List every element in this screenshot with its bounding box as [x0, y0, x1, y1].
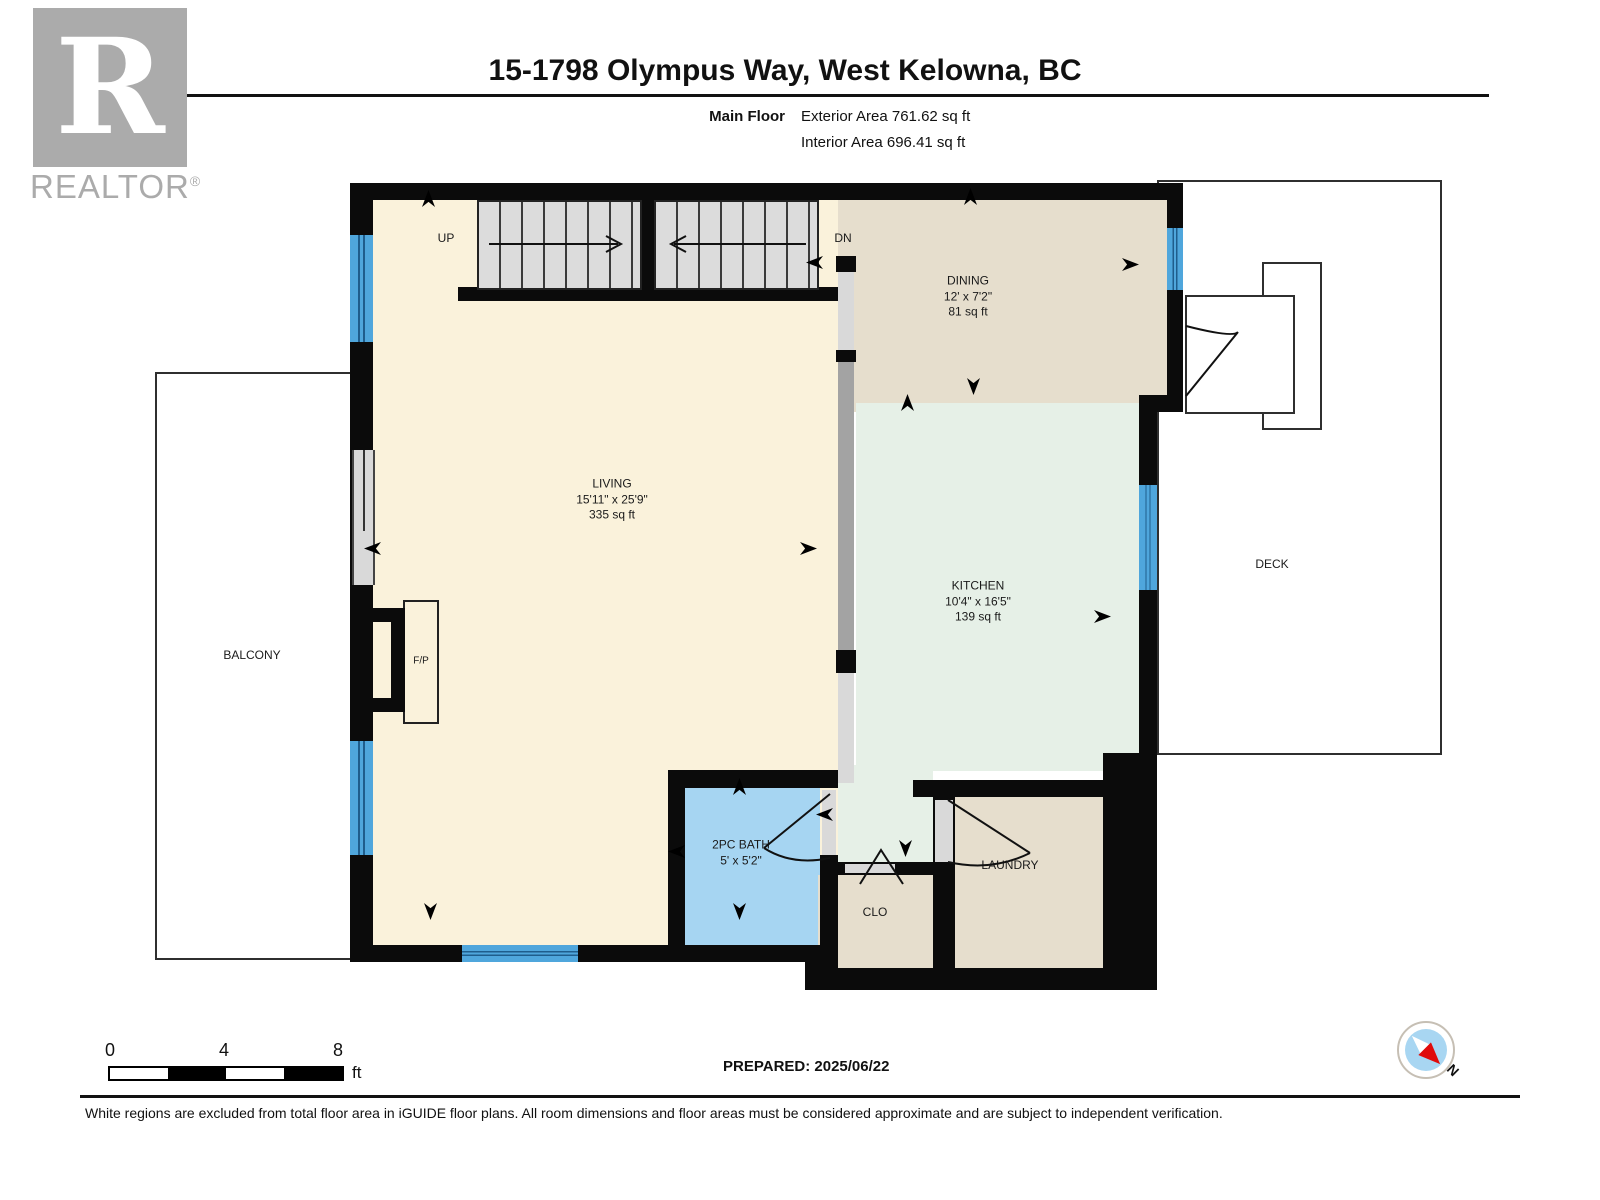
- stairs-up-label: UP: [438, 231, 455, 247]
- room-dims: 10'4" x 16'5": [945, 594, 1011, 610]
- room-label-kitchen: KITCHEN 10'4" x 16'5" 139 sq ft: [945, 579, 1011, 626]
- door-opening: [845, 864, 895, 873]
- room-name: 2PC BATH: [712, 837, 770, 853]
- exterior-area-text: Exterior Area 761.62 sq ft: [801, 108, 970, 125]
- room-label-closet: CLO: [863, 905, 888, 921]
- passage-opening: [838, 272, 854, 350]
- room-name: DINING: [944, 274, 992, 290]
- realtor-logo-icon: R: [33, 8, 187, 167]
- room-laundry-floor: [955, 797, 1110, 968]
- scale-tick-0: 0: [105, 1040, 115, 1061]
- room-name: CLO: [863, 905, 888, 921]
- door-opening: [822, 790, 836, 855]
- room-label-bath: 2PC BATH 5' x 5'2": [712, 837, 770, 868]
- scale-unit: ft: [352, 1063, 361, 1083]
- stairs-down-label: DN: [834, 231, 851, 247]
- room-area: 139 sq ft: [945, 610, 1011, 626]
- disclaimer-text: White regions are excluded from total fl…: [85, 1105, 1535, 1121]
- realtor-logo-letter: R: [55, 22, 165, 154]
- room-name: KITCHEN: [945, 579, 1011, 595]
- door-opening: [935, 800, 953, 862]
- room-name: DECK: [1255, 557, 1288, 573]
- wall-segment: [836, 256, 856, 272]
- room-label-laundry: LAUNDRY: [981, 858, 1038, 874]
- room-dims: 12' x 7'2": [944, 289, 992, 305]
- sliding-door: [352, 450, 375, 585]
- room-dining-floor: [838, 200, 1167, 412]
- title-divider: [77, 94, 1489, 97]
- room-label-dining: DINING 12' x 7'2" 81 sq ft: [944, 274, 992, 321]
- wall-segment: [1167, 183, 1183, 412]
- window: [350, 741, 373, 855]
- deck-landing-inner: [1185, 295, 1295, 414]
- room-name: LAUNDRY: [981, 858, 1038, 874]
- fireplace-label: F/P: [413, 655, 429, 668]
- stairs-up: [477, 200, 642, 290]
- room-dims: 5' x 5'2": [712, 853, 770, 869]
- wall-segment: [836, 350, 856, 362]
- scale-tick-8: 8: [333, 1040, 343, 1061]
- wall-segment: [350, 945, 820, 962]
- floorplan-page: R REALTOR® 15-1798 Olympus Way, West Kel…: [0, 0, 1600, 1200]
- wall-segment: [805, 968, 1140, 990]
- fireplace-frame: [373, 698, 405, 712]
- page-title: 15-1798 Olympus Way, West Kelowna, BC: [0, 54, 1570, 88]
- room-area: 81 sq ft: [944, 305, 992, 321]
- room-dims: 15'11" x 25'9": [576, 492, 648, 508]
- scale-tick-4: 4: [219, 1040, 229, 1061]
- window: [350, 235, 373, 342]
- wall-segment: [836, 650, 856, 673]
- room-name: BALCONY: [223, 648, 280, 664]
- counter-half-wall: [838, 362, 854, 650]
- passage-opening: [838, 673, 854, 783]
- scale-segment: [168, 1068, 226, 1079]
- wall-segment: [820, 875, 838, 968]
- scale-bar: [108, 1066, 344, 1081]
- floor-label: Main Floor: [600, 108, 785, 125]
- interior-area-text: Interior Area 696.41 sq ft: [801, 134, 965, 151]
- wall-segment: [668, 770, 685, 962]
- scale-segment: [110, 1068, 168, 1079]
- window: [462, 945, 578, 962]
- scale-segment: [284, 1068, 342, 1079]
- fireplace-frame: [391, 608, 405, 712]
- footer-divider: [80, 1095, 1520, 1098]
- wall-segment: [668, 770, 838, 788]
- room-label-deck: DECK: [1255, 557, 1288, 573]
- prepared-date: PREPARED: 2025/06/22: [723, 1058, 889, 1075]
- wall-segment: [350, 183, 1183, 200]
- room-label-living: LIVING 15'11" x 25'9" 335 sq ft: [576, 477, 648, 524]
- window: [1167, 228, 1183, 290]
- scale-segment: [226, 1068, 284, 1079]
- room-label-balcony: BALCONY: [223, 648, 280, 664]
- room-area: 335 sq ft: [576, 508, 648, 524]
- balcony-outline: [155, 372, 359, 960]
- registered-mark: ®: [190, 173, 201, 189]
- room-name: LIVING: [576, 477, 648, 493]
- realtor-logo-wordmark: REALTOR®: [30, 168, 201, 206]
- stairs-down: [654, 200, 819, 290]
- window: [1139, 485, 1157, 590]
- realtor-brand-text: REALTOR: [30, 168, 190, 205]
- wall-segment: [640, 183, 654, 301]
